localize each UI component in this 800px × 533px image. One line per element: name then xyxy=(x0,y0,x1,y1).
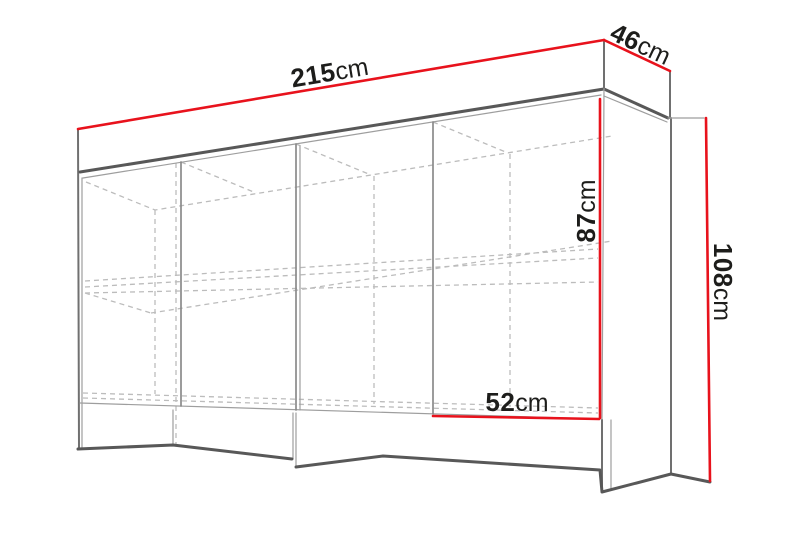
cabinet-outline xyxy=(78,40,710,492)
hidden-shelf-edges xyxy=(85,241,612,313)
section-width-value: 52 xyxy=(485,387,515,417)
width-unit: cm xyxy=(333,53,371,86)
top-fascia-bottom-edge xyxy=(80,89,668,172)
plinth-bottom-right xyxy=(296,456,710,492)
total-height-unit: cm xyxy=(708,288,736,321)
hidden-vertical-edges xyxy=(155,154,510,444)
leg-edges xyxy=(173,410,611,489)
depth-dimension-label: 46cm xyxy=(606,17,676,71)
opening-height-dimension-label: 87cm xyxy=(571,179,601,242)
width-value: 215 xyxy=(288,56,337,93)
opening-height-unit: cm xyxy=(573,179,601,212)
section-width-dimension-label: 52cm xyxy=(485,387,548,417)
plinth-bottom-left xyxy=(78,445,292,459)
inner-opening-top-edge xyxy=(83,95,667,178)
diagram-canvas: 215cm 46cm 87cm 108cm 52cm xyxy=(0,0,800,533)
hidden-divider-depth-edges xyxy=(181,122,508,193)
left-outer-edge xyxy=(78,129,79,449)
total-height-dimension-label: 108cm xyxy=(708,243,738,321)
front-right-edge xyxy=(602,89,604,420)
width-dimension-label: 215cm xyxy=(288,51,370,94)
hidden-back-top-edge xyxy=(86,136,612,210)
opening-height-value: 87 xyxy=(571,213,601,243)
total-height-value: 108 xyxy=(708,243,738,288)
cabinet-drawing: 215cm 46cm 87cm 108cm 52cm xyxy=(0,0,800,533)
section-width-unit: cm xyxy=(515,389,548,417)
